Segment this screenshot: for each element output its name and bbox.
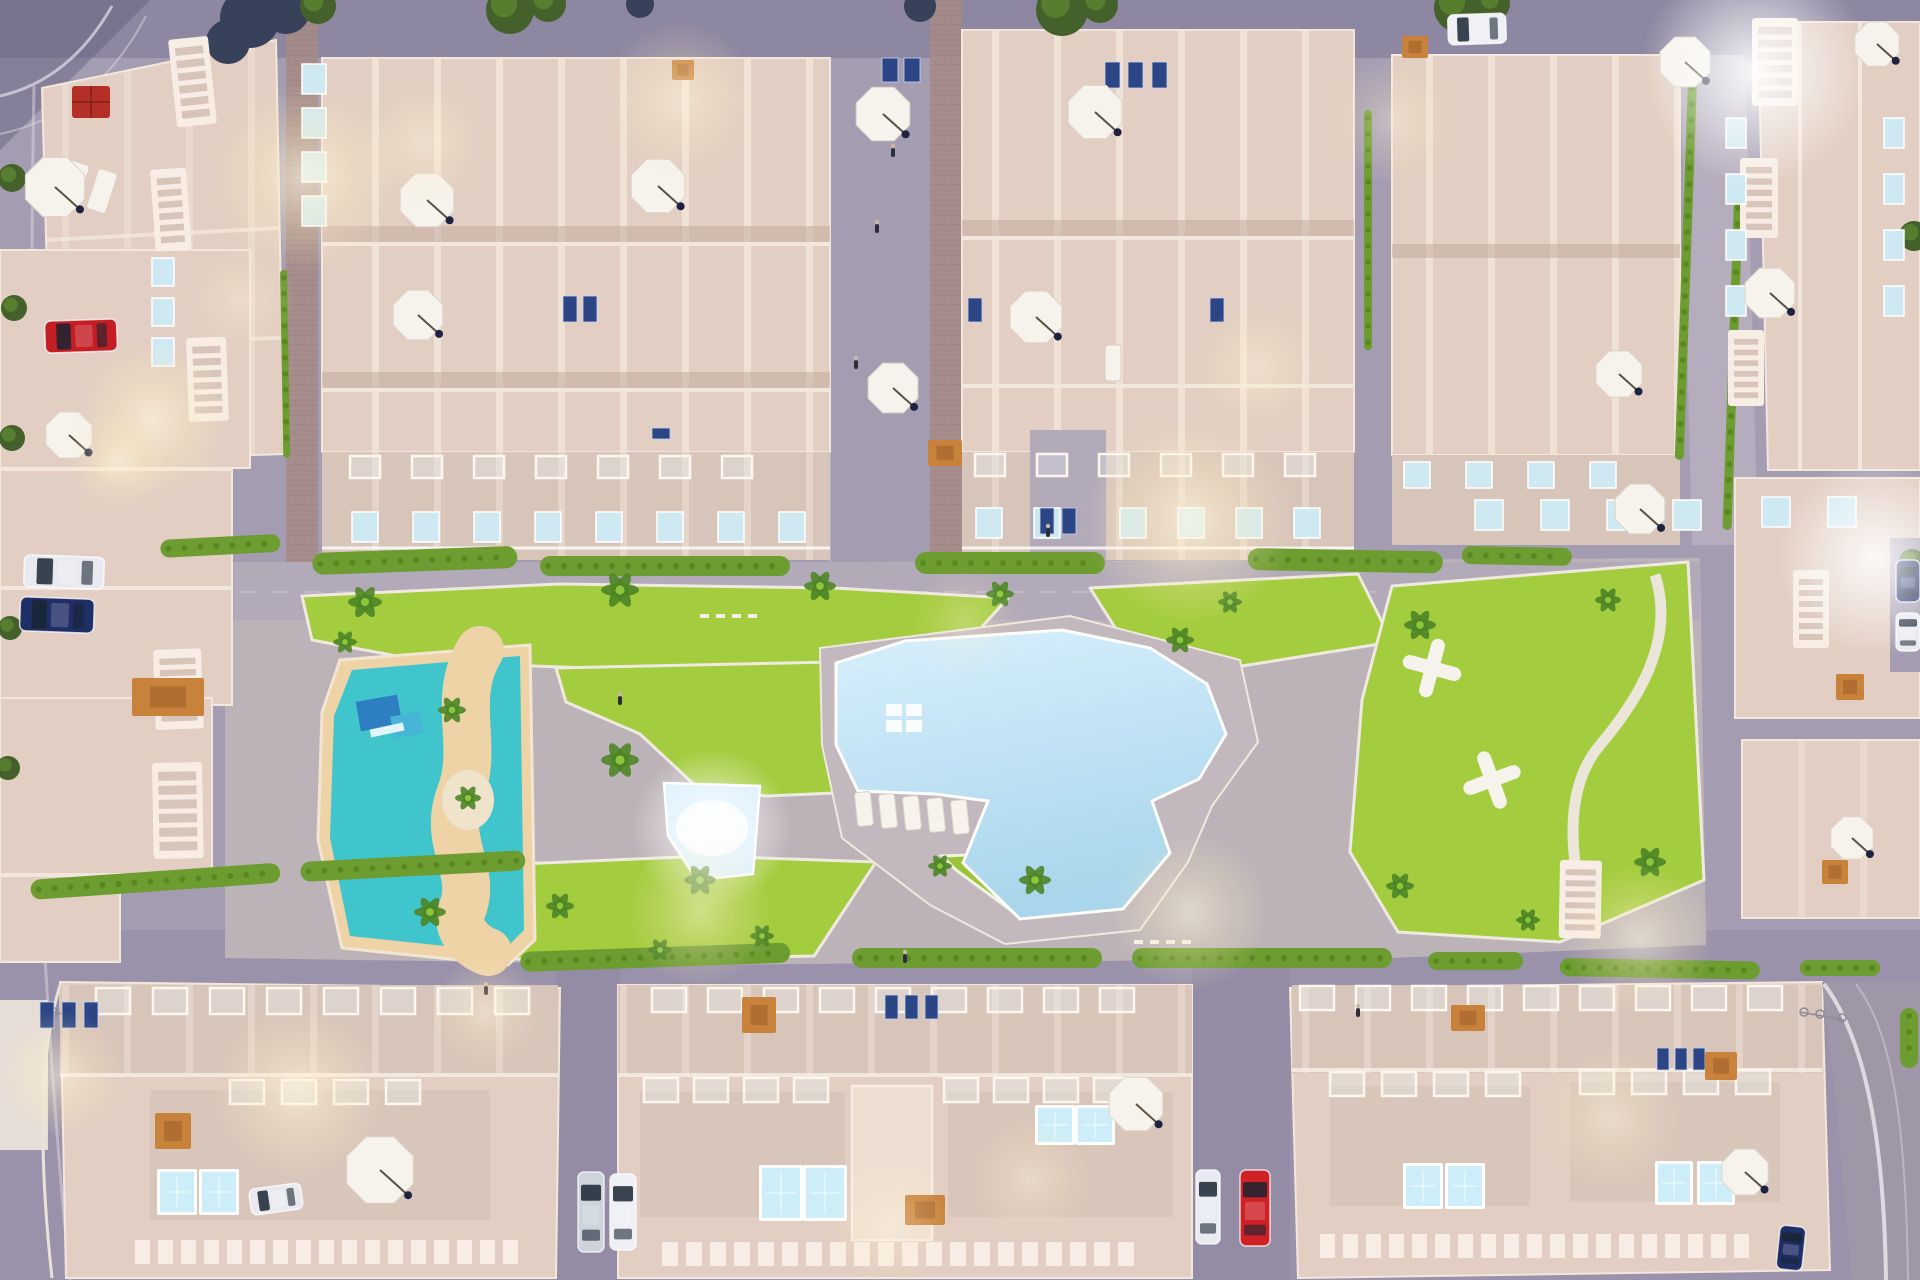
sunbed-navy: [885, 995, 898, 1019]
railing-post: [1688, 1234, 1703, 1258]
railing-post: [1046, 1242, 1062, 1266]
sunbed-navy: [1675, 1048, 1687, 1070]
rooftop-staircase: [1559, 860, 1602, 939]
rooftop-jacuzzi: [1655, 1161, 1693, 1205]
hedge-strip: [1248, 548, 1443, 573]
parasol-icon: [631, 159, 685, 213]
railing-post: [854, 1242, 870, 1266]
roof-window: [1178, 508, 1204, 538]
roof-window: [1726, 174, 1746, 204]
terrace-frame: [350, 456, 380, 478]
parasol-icon: [1831, 817, 1874, 859]
railing-post: [902, 1242, 918, 1266]
roof-window: [152, 298, 174, 326]
parasol-icon: [1068, 85, 1122, 139]
red-lounge-set: [72, 86, 110, 118]
block-e-passage: [1030, 430, 1106, 562]
building-block-g: [1735, 478, 1920, 918]
railing-post: [1389, 1234, 1404, 1258]
railing-post: [950, 1242, 966, 1266]
railing-post: [1320, 1234, 1335, 1258]
rooftop-jacuzzi: [803, 1165, 847, 1221]
sunbed-navy: [1657, 1048, 1669, 1070]
terrace-frame: [1100, 988, 1134, 1012]
aerial-render: Aerial dusk 3D render of a residential c…: [0, 0, 1920, 1280]
terrace-frame: [1223, 454, 1253, 476]
railing-post: [1504, 1234, 1519, 1258]
railing-post: [1596, 1234, 1611, 1258]
terrace-frame: [975, 454, 1005, 476]
roof-window: [302, 196, 326, 226]
sunbed-navy: [563, 296, 577, 322]
rooftop-jacuzzi: [1445, 1163, 1485, 1209]
terrace-frame: [1692, 986, 1726, 1010]
sunbed-navy: [905, 995, 918, 1019]
railing-post: [782, 1242, 798, 1266]
railing-post: [1412, 1234, 1427, 1258]
person: [875, 220, 879, 233]
railing-post: [388, 1240, 403, 1264]
terrace-frame: [1580, 986, 1614, 1010]
railing-post: [480, 1240, 495, 1264]
furniture-red-layer: [72, 86, 110, 118]
roof-window: [1120, 508, 1146, 538]
roof-window: [1726, 286, 1746, 316]
railing-post: [1711, 1234, 1726, 1258]
hedge-strip: [1132, 948, 1392, 968]
railing-post: [181, 1240, 196, 1264]
block-f-shadow: [1392, 244, 1680, 258]
wooden-furniture: [155, 1113, 191, 1149]
roof-window: [152, 338, 174, 366]
parasol-icon: [1745, 268, 1795, 318]
railing-post: [758, 1242, 774, 1266]
terrace-frame: [994, 1078, 1028, 1102]
sunbed-navy: [925, 995, 938, 1019]
sun-lounger: [950, 799, 969, 834]
roof-window: [152, 258, 174, 286]
railing-post: [1619, 1234, 1634, 1258]
roof-window: [1673, 500, 1701, 530]
terrace-frame: [1285, 454, 1315, 476]
block-e-shadow: [962, 220, 1354, 236]
hedge-strip: [1428, 952, 1523, 970]
parasol-icon: [1615, 484, 1665, 534]
railing-post: [716, 614, 725, 618]
parasol-icon: [347, 1137, 414, 1204]
roof-window: [413, 512, 439, 542]
sunbed-navy: [583, 296, 597, 322]
roof-window: [1828, 497, 1856, 527]
railing-post: [365, 1240, 380, 1264]
terrace-frame: [1044, 988, 1078, 1012]
sun-lounger: [1105, 345, 1121, 381]
terrace-frame: [652, 988, 686, 1012]
roof-window: [657, 512, 683, 542]
railing-post: [135, 1240, 150, 1264]
wooden-furniture: [905, 1195, 945, 1225]
roof-window: [302, 108, 326, 138]
parasol-icon: [25, 157, 84, 216]
sunbed-navy: [1693, 1048, 1705, 1070]
wooden-furniture: [742, 997, 776, 1033]
sunbed-navy: [1210, 298, 1224, 322]
sun-lounger: [926, 797, 945, 832]
terrace-frame: [495, 988, 529, 1014]
railing-post: [457, 1240, 472, 1264]
railing-post: [998, 1242, 1014, 1266]
parked-car: [610, 1174, 636, 1250]
roof-window: [1294, 508, 1320, 538]
terrace-frame: [1412, 986, 1446, 1010]
railing-post: [1481, 1234, 1496, 1258]
rooftop-staircase: [186, 337, 229, 422]
roof-window: [1236, 508, 1262, 538]
parked-car: [1196, 1170, 1220, 1244]
railing-post: [1573, 1234, 1588, 1258]
railing-post: [1118, 1242, 1134, 1266]
terrace-frame: [988, 988, 1022, 1012]
person: [1046, 524, 1050, 537]
parasol-icon: [868, 363, 918, 413]
hedge-strip: [1462, 546, 1572, 566]
railing-post: [227, 1240, 242, 1264]
pool-step: [906, 704, 922, 716]
sunbed-navy: [62, 1002, 76, 1028]
pool-step: [886, 720, 902, 732]
parked-car: [1240, 1170, 1270, 1246]
roof-window: [1884, 286, 1904, 316]
roof-window: [1404, 462, 1430, 488]
parasol-icon: [46, 412, 93, 458]
parked-car: [44, 319, 117, 353]
roof-window: [1884, 230, 1904, 260]
roof-window: [976, 508, 1002, 538]
railing-post: [1150, 940, 1159, 944]
terrace-frame: [438, 988, 472, 1014]
sunbed-navy: [652, 428, 670, 439]
terrace-frame: [1736, 1070, 1770, 1094]
terrace-frame: [1434, 1072, 1468, 1096]
terrace-frame: [1580, 1070, 1614, 1094]
parked-car: [1896, 613, 1920, 651]
railing-post: [878, 1242, 894, 1266]
terrace-frame: [1161, 454, 1191, 476]
railing-post: [926, 1242, 942, 1266]
person: [891, 144, 895, 157]
person: [1356, 1004, 1360, 1017]
roof-window: [1884, 174, 1904, 204]
roof-window: [1884, 118, 1904, 148]
terrace-frame: [1486, 1072, 1520, 1096]
person: [903, 950, 907, 963]
person: [618, 692, 622, 705]
terrace-frame: [1524, 986, 1558, 1010]
roof-window: [1475, 500, 1503, 530]
block-d-terrace-walls: [322, 452, 830, 560]
rooftop-staircase: [1793, 570, 1829, 648]
sun-lounger: [878, 793, 897, 828]
roof-window: [1466, 462, 1492, 488]
parked-car: [1896, 560, 1920, 602]
terrace-frame: [210, 988, 244, 1014]
railing-post: [732, 614, 741, 618]
hedge-strip: [1800, 960, 1880, 976]
hedge-strip: [1364, 110, 1372, 350]
railing-post: [974, 1242, 990, 1266]
railing-post: [434, 1240, 449, 1264]
sunbed-navy: [84, 1002, 98, 1028]
terrace-frame: [722, 456, 752, 478]
railing-post: [319, 1240, 334, 1264]
parked-car: [23, 555, 104, 590]
parasol-icon: [1855, 22, 1900, 66]
rooftop-staircase: [152, 762, 204, 859]
railing-post: [273, 1240, 288, 1264]
terrace-frame: [1330, 1072, 1364, 1096]
parasol-icon: [1109, 1077, 1163, 1131]
parked-car: [19, 597, 94, 634]
block-bl-walls: [60, 985, 558, 1073]
parasol-icon: [1660, 37, 1710, 87]
sun-lounger: [854, 791, 873, 826]
railing-post: [1734, 1234, 1749, 1258]
parked-car: [1776, 1225, 1806, 1271]
parasol-icon: [1596, 351, 1643, 397]
pool-step: [906, 720, 922, 732]
railing-post: [411, 1240, 426, 1264]
terrace-frame: [282, 1080, 316, 1104]
hedge-strip: [852, 948, 1102, 968]
terrace-frame: [267, 988, 301, 1014]
railing-post: [1343, 1234, 1358, 1258]
person: [484, 982, 488, 995]
terrace-frame: [381, 988, 415, 1014]
railing-post: [158, 1240, 173, 1264]
terrace-frame: [412, 456, 442, 478]
tree-dark-icon: [206, 20, 250, 64]
railing-post: [710, 1242, 726, 1266]
wooden-furniture: [1822, 860, 1848, 884]
railing-post: [296, 1240, 311, 1264]
terrace-frame: [794, 1078, 828, 1102]
terrace-frame: [230, 1080, 264, 1104]
roof-window: [535, 512, 561, 542]
sunbed-navy: [40, 1002, 54, 1028]
sunbed-navy: [904, 58, 920, 82]
small-pool-glow: [676, 800, 748, 856]
wooden-furniture: [1705, 1052, 1737, 1080]
terrace-frame: [1382, 1072, 1416, 1096]
parked-car: [1447, 13, 1506, 45]
terrace-frame: [1632, 1070, 1666, 1094]
terrace-frame: [944, 1078, 978, 1102]
sunbed-navy: [1152, 62, 1167, 88]
rooftop-jacuzzi: [157, 1169, 197, 1215]
roof-window: [1726, 230, 1746, 260]
brick-path-center: [930, 0, 962, 572]
wooden-furniture: [1402, 36, 1428, 58]
block-d-shadow: [322, 372, 830, 388]
terrace-frame: [96, 988, 130, 1014]
railing-post: [1366, 1234, 1381, 1258]
hedge-strip: [915, 552, 1105, 574]
railing-post: [1642, 1234, 1657, 1258]
rooftop-staircase: [1728, 330, 1764, 406]
railing-post: [662, 1242, 678, 1266]
terrace-frame: [1356, 986, 1390, 1010]
terrace-frame: [1300, 986, 1334, 1010]
railing-post: [1070, 1242, 1086, 1266]
terrace-frame: [153, 988, 187, 1014]
wooden-furniture: [672, 60, 694, 80]
terrace-frame: [660, 456, 690, 478]
tree-icon: [0, 425, 25, 451]
roof-window: [1528, 462, 1554, 488]
sunbed-navy: [1062, 508, 1076, 534]
railing-post: [806, 1242, 822, 1266]
wooden-furniture: [132, 678, 204, 716]
block-d-shadow: [322, 226, 830, 242]
railing-post: [1550, 1234, 1565, 1258]
sunbed-navy: [1105, 62, 1120, 88]
terrace-frame: [820, 988, 854, 1012]
wooden-furniture: [928, 440, 962, 466]
wooden-furniture: [1836, 674, 1864, 700]
railing-post: [1166, 940, 1175, 944]
railing-post: [1458, 1234, 1473, 1258]
terrace-frame: [386, 1080, 420, 1104]
sunbed-navy: [1128, 62, 1143, 88]
rooftop-jacuzzi: [759, 1165, 803, 1221]
railing-post: [1665, 1234, 1680, 1258]
railing-post: [734, 1242, 750, 1266]
terrace-frame: [644, 1078, 678, 1102]
railing-post: [342, 1240, 357, 1264]
person: [854, 356, 858, 369]
terrace-frame: [1099, 454, 1129, 476]
hedge-strip: [1900, 1008, 1918, 1068]
terrace-frame: [1748, 986, 1782, 1010]
roof-window: [352, 512, 378, 542]
wooden-furniture: [1451, 1005, 1485, 1031]
terrace-frame: [1037, 454, 1067, 476]
sunbed-navy: [968, 298, 982, 322]
railing-post: [686, 1242, 702, 1266]
hedge-strip: [1560, 958, 1760, 979]
parked-car: [578, 1172, 604, 1252]
terrace-frame: [474, 456, 504, 478]
railing-post: [1134, 940, 1143, 944]
roof-window: [302, 64, 326, 94]
roof-window: [1541, 500, 1569, 530]
roof-window: [1726, 118, 1746, 148]
terrace-frame: [694, 1078, 728, 1102]
terrace-frame: [324, 988, 358, 1014]
parasol-icon: [1010, 291, 1062, 343]
parasol-icon: [393, 290, 443, 340]
hedge-strip: [540, 556, 790, 576]
railing-post: [830, 1242, 846, 1266]
rooftop-jacuzzi: [199, 1169, 239, 1215]
terrace-frame: [744, 1078, 778, 1102]
railing-post: [748, 614, 757, 618]
roof-window: [596, 512, 622, 542]
railing-post: [1022, 1242, 1038, 1266]
scene-svg: Aerial dusk 3D render of a residential c…: [0, 0, 1920, 1280]
railing-post: [1435, 1234, 1450, 1258]
rooftop-staircase: [1752, 18, 1798, 106]
terrace-frame: [536, 456, 566, 478]
building-bottom-left: [43, 982, 560, 1278]
railing-post: [503, 1240, 518, 1264]
railing-post: [1527, 1234, 1542, 1258]
block-e-walls: [962, 30, 1354, 452]
railing-post: [1182, 940, 1191, 944]
rooftop-staircase: [150, 167, 192, 251]
terrace-frame: [1636, 986, 1670, 1010]
roof-window: [302, 152, 326, 182]
terrace-frame: [598, 456, 628, 478]
parasol-icon: [856, 87, 910, 141]
block-d-walls: [322, 58, 830, 452]
sunbed-navy: [882, 58, 898, 82]
roof-window: [779, 512, 805, 542]
terrace-frame: [1044, 1078, 1078, 1102]
rooftop-jacuzzi: [1035, 1105, 1075, 1145]
railing-post: [250, 1240, 265, 1264]
parasol-icon: [1722, 1149, 1769, 1195]
roof-window: [1762, 497, 1790, 527]
tree-icon: [1, 295, 27, 321]
railing-post: [1094, 1242, 1110, 1266]
sun-lounger: [902, 795, 921, 830]
railing-post: [204, 1240, 219, 1264]
rooftop-jacuzzi: [1403, 1163, 1443, 1209]
roof-window: [1590, 462, 1616, 488]
roof-window: [474, 512, 500, 542]
terrace-frame: [334, 1080, 368, 1104]
parasol-icon: [400, 173, 454, 227]
terrace-frame: [708, 988, 742, 1012]
pool-step: [886, 704, 902, 716]
roof-window: [718, 512, 744, 542]
railing-post: [700, 614, 709, 618]
